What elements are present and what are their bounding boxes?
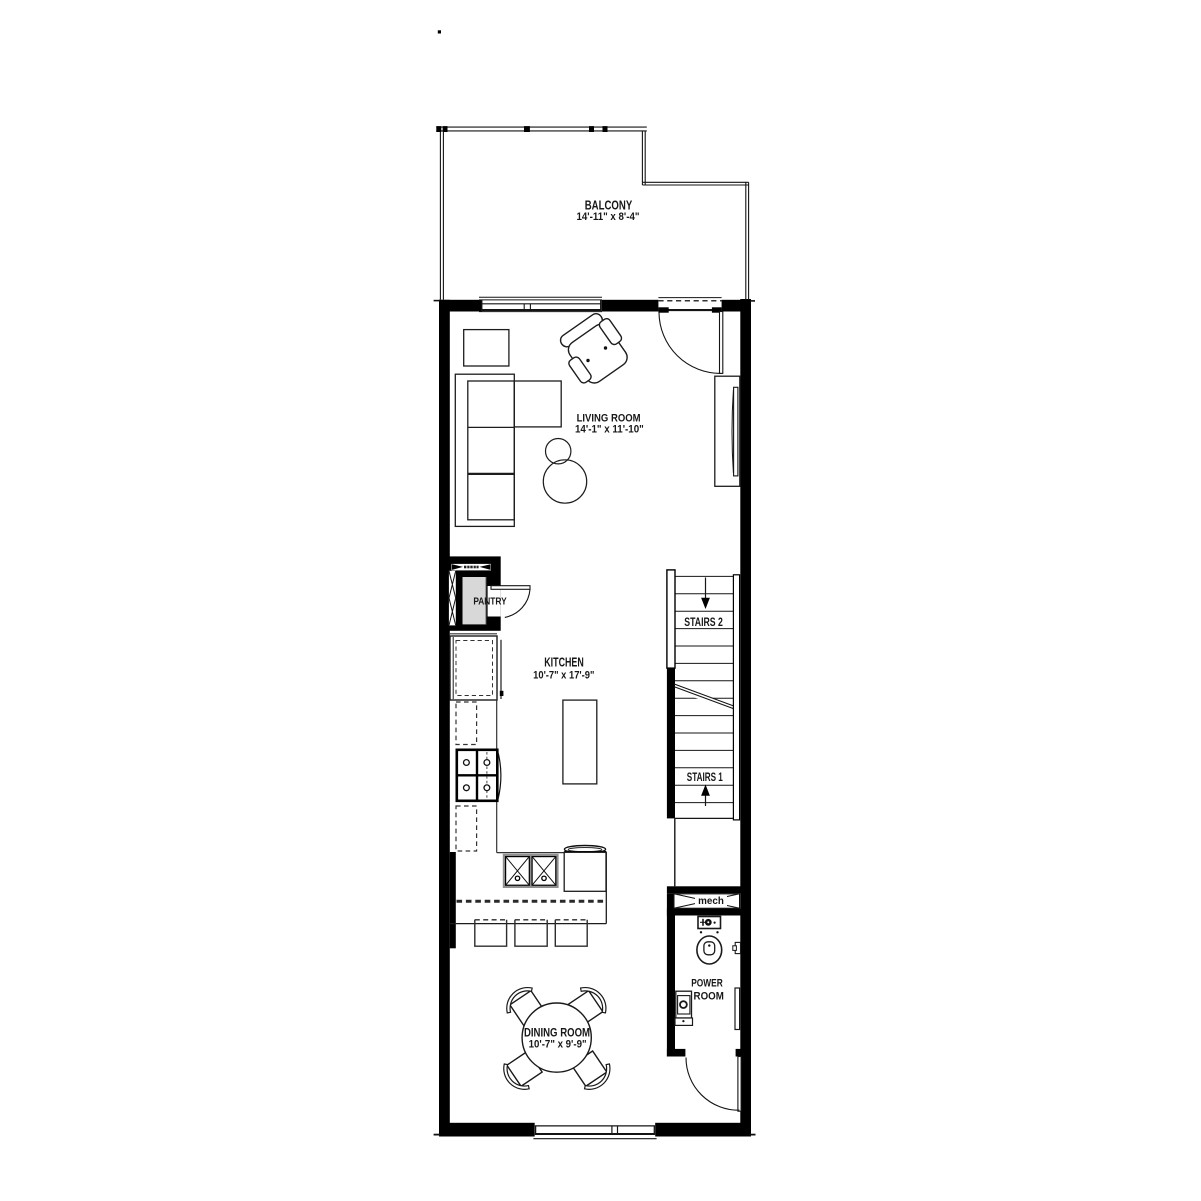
svg-text:KITCHEN: KITCHEN: [544, 656, 584, 670]
svg-text:POWER: POWER: [691, 978, 723, 990]
svg-text:DINING ROOM: DINING ROOM: [524, 1025, 590, 1039]
svg-text:ROOM: ROOM: [694, 990, 724, 1002]
svg-text:14'-1" x 11'-10": 14'-1" x 11'-10": [575, 423, 644, 435]
svg-text:PANTRY: PANTRY: [473, 597, 506, 608]
svg-text:14'-11" x 8'-4": 14'-11" x 8'-4": [577, 211, 640, 223]
svg-text:STAIRS 2: STAIRS 2: [684, 615, 723, 629]
svg-text:mech: mech: [698, 896, 724, 907]
svg-text:10'-7" x 17'-9": 10'-7" x 17'-9": [533, 670, 594, 682]
svg-text:10'-7" x 9'-9": 10'-7" x 9'-9": [529, 1039, 587, 1051]
svg-text:STAIRS 1: STAIRS 1: [687, 770, 723, 784]
